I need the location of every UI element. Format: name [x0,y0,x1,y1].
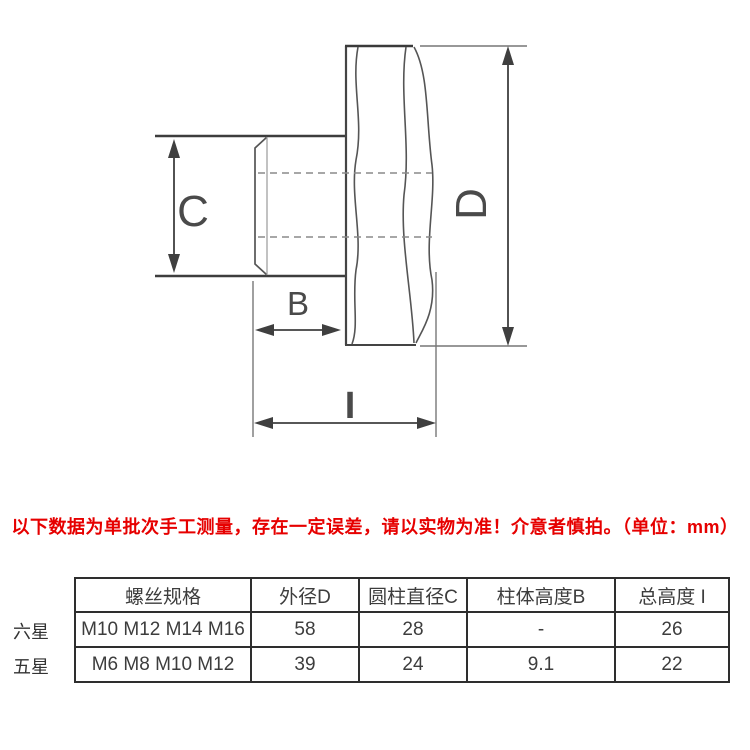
lobe-curve-inner-right [403,47,414,343]
spec-table: 螺丝规格 外径D 圆柱直径C 柱体高度B 总高度 I 六星 M10 M12 M1… [13,577,730,683]
row-label-five-star: 五星 [13,648,74,683]
dimension-b: B [255,285,341,336]
dimension-i: I [254,385,436,429]
extension-lines [253,46,527,437]
table-cell: - [468,613,616,648]
knob-technical-drawing: C B I D [0,0,750,470]
label-d: D [447,188,496,220]
table-cell: 24 [360,648,468,683]
disclaimer-note: 以下数据为单批次手工测量，存在一定误差，请以实物为准！介意者慎拍。（单位：mm） [0,513,750,539]
col-header-cylinder-diameter: 圆柱直径C [360,577,468,613]
lobe-curve-outer-right [414,47,433,343]
dimension-c: C [168,139,209,273]
table-cell: 22 [616,648,730,683]
label-c: C [177,187,209,236]
label-i: I [345,385,356,427]
col-header-spec: 螺丝规格 [74,577,252,613]
product-spec-page: C B I D 以下数据为 [0,0,750,750]
table-cell: 58 [252,613,360,648]
col-header-total-height: 总高度 I [616,577,730,613]
table-cell: 28 [360,613,468,648]
row-label-six-star: 六星 [13,613,74,648]
table-cell: 39 [252,648,360,683]
col-header-outer-diameter: 外径D [252,577,360,613]
dimension-d: D [447,46,514,346]
knob-outline [345,46,433,345]
table-cell: M10 M12 M14 M16 [74,613,252,648]
table-cell: 9.1 [468,648,616,683]
label-b: B [287,285,309,322]
corner-spacer [13,577,74,613]
col-header-column-height: 柱体高度B [468,577,616,613]
table-cell: M6 M8 M10 M12 [74,648,252,683]
table-cell: 26 [616,613,730,648]
lobe-curve-left [352,47,359,344]
